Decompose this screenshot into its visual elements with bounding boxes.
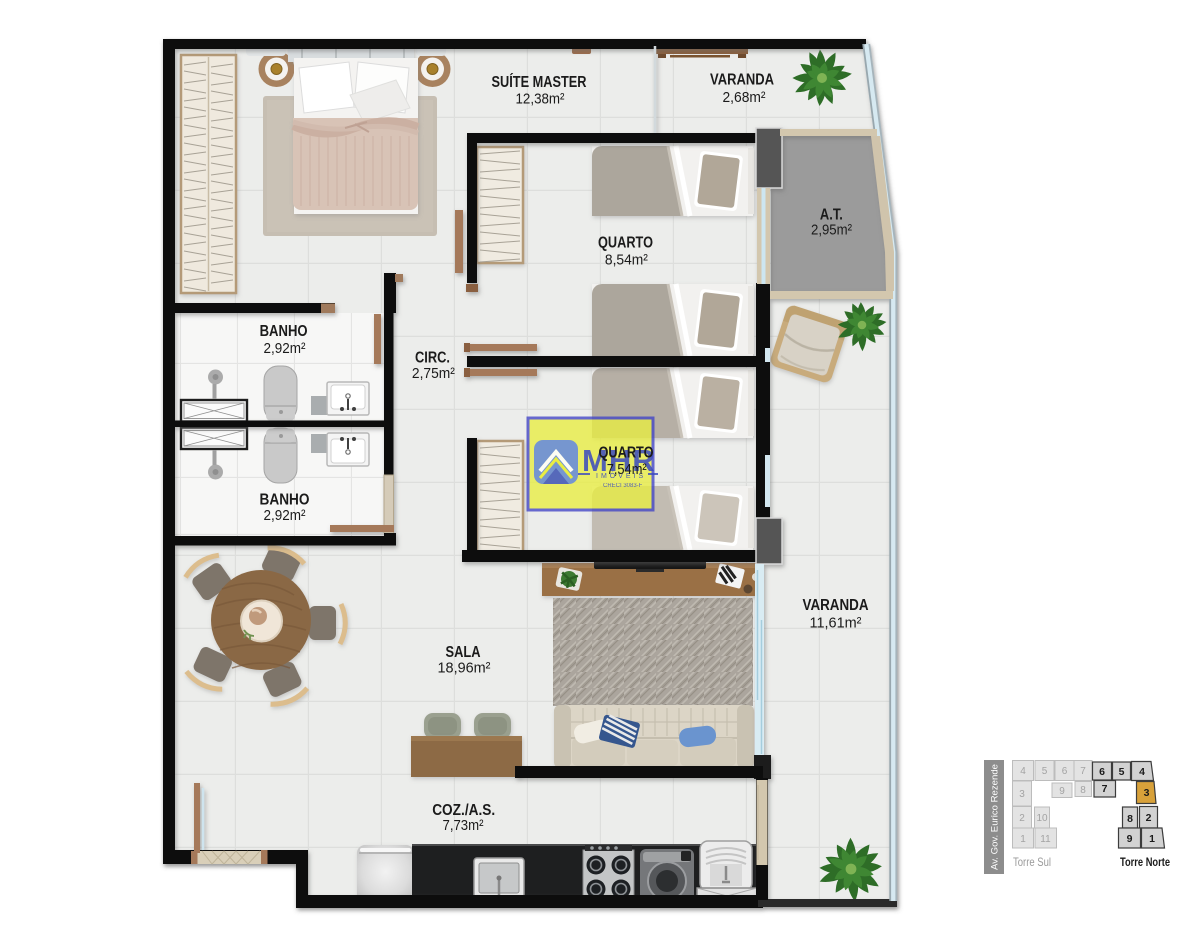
- svg-text:7,54m²: 7,54m²: [607, 461, 647, 478]
- svg-text:2,68m²: 2,68m²: [723, 89, 766, 106]
- svg-text:7,73m²: 7,73m²: [443, 817, 484, 834]
- svg-text:VARANDA: VARANDA: [710, 71, 774, 88]
- svg-text:SUÍTE MASTER: SUÍTE MASTER: [492, 72, 587, 91]
- svg-text:2,75m²: 2,75m²: [412, 365, 455, 382]
- svg-text:8: 8: [1127, 813, 1133, 825]
- svg-text:CRECI 3083-F: CRECI 3083-F: [603, 483, 643, 489]
- svg-text:1: 1: [1149, 833, 1155, 845]
- svg-text:Av. Gov. Eurico Rezende: Av. Gov. Eurico Rezende: [990, 764, 1001, 870]
- svg-text:11,61m²: 11,61m²: [810, 615, 862, 632]
- svg-text:5: 5: [1042, 766, 1048, 777]
- svg-text:1: 1: [1020, 834, 1026, 845]
- svg-text:VARANDA: VARANDA: [803, 597, 869, 614]
- svg-text:8,54m²: 8,54m²: [605, 251, 648, 268]
- svg-text:18,96m²: 18,96m²: [438, 660, 491, 677]
- svg-text:6: 6: [1099, 766, 1105, 778]
- svg-text:9: 9: [1059, 786, 1065, 797]
- svg-text:7: 7: [1102, 783, 1108, 795]
- svg-text:6: 6: [1062, 766, 1068, 777]
- svg-text:QUARTO: QUARTO: [598, 235, 653, 252]
- svg-text:5: 5: [1119, 766, 1125, 778]
- svg-text:2: 2: [1019, 813, 1025, 824]
- svg-text:7: 7: [1080, 766, 1086, 777]
- svg-text:3: 3: [1019, 789, 1025, 800]
- svg-text:2: 2: [1146, 812, 1152, 824]
- svg-text:CIRC.: CIRC.: [415, 349, 450, 366]
- svg-text:3: 3: [1144, 787, 1150, 799]
- svg-text:2,92m²: 2,92m²: [264, 340, 306, 357]
- svg-text:12,38m²: 12,38m²: [516, 91, 565, 108]
- svg-text:9: 9: [1127, 833, 1133, 845]
- svg-text:4: 4: [1139, 766, 1145, 778]
- svg-text:2,95m²: 2,95m²: [811, 222, 852, 239]
- svg-text:BANHO: BANHO: [260, 323, 308, 340]
- svg-text:4: 4: [1020, 766, 1026, 777]
- svg-text:QUARTO: QUARTO: [599, 445, 654, 462]
- svg-text:2,92m²: 2,92m²: [264, 507, 306, 524]
- svg-text:10: 10: [1036, 813, 1048, 824]
- svg-text:SALA: SALA: [446, 644, 481, 661]
- svg-text:Torre Sul: Torre Sul: [1013, 855, 1051, 869]
- svg-text:8: 8: [1080, 785, 1086, 796]
- svg-text:11: 11: [1040, 834, 1051, 845]
- svg-text:Torre Norte: Torre Norte: [1120, 855, 1170, 869]
